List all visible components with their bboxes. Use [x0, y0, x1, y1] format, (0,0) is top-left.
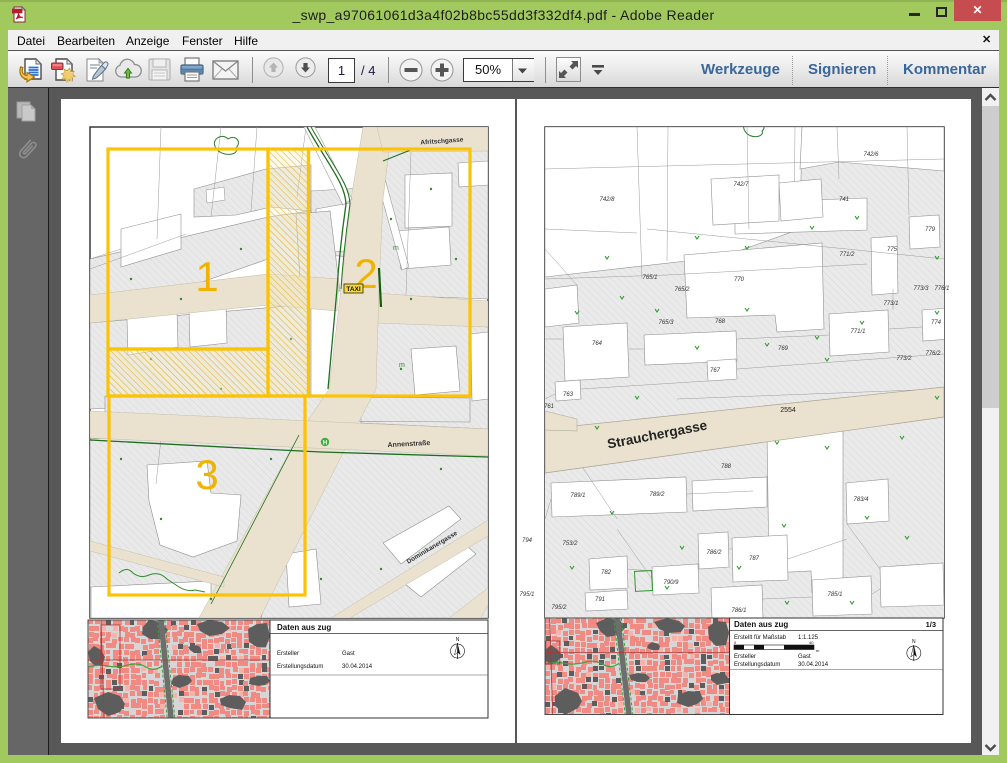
svg-text:764: 764	[592, 341, 603, 347]
svg-text:774: 774	[931, 320, 942, 326]
svg-text:794: 794	[522, 538, 533, 544]
svg-text:776/2: 776/2	[925, 351, 941, 357]
svg-text:1/3: 1/3	[926, 620, 936, 629]
svg-text:779: 779	[925, 227, 936, 233]
svg-text:Ersteller: Ersteller	[277, 651, 299, 657]
svg-text:787: 787	[749, 556, 760, 562]
svg-text:2554: 2554	[780, 407, 796, 414]
svg-text:Erstellungsdatum: Erstellungsdatum	[277, 664, 323, 670]
svg-text:795/2: 795/2	[551, 605, 567, 611]
svg-text:776/1: 776/1	[934, 286, 949, 292]
svg-text:773/1: 773/1	[883, 301, 898, 307]
svg-text:Gast: Gast	[342, 651, 355, 657]
svg-text:Daten aus zug: Daten aus zug	[734, 620, 788, 629]
svg-text:768: 768	[715, 319, 726, 325]
svg-text:1: 1	[195, 253, 218, 300]
svg-text:40: 40	[809, 640, 814, 645]
svg-text:783/4: 783/4	[853, 497, 869, 503]
svg-text:767: 767	[710, 368, 721, 374]
svg-text:769: 769	[778, 346, 789, 352]
svg-text:789/2: 789/2	[649, 492, 665, 498]
svg-text:775: 775	[887, 247, 898, 253]
svg-text:788: 788	[721, 464, 732, 470]
svg-text:765/1: 765/1	[642, 275, 657, 281]
svg-text:791: 791	[595, 597, 605, 603]
svg-text:765/3: 765/3	[658, 320, 674, 326]
svg-text:782: 782	[601, 570, 612, 576]
svg-text:m: m	[399, 362, 405, 369]
svg-text:TAXI: TAXI	[346, 286, 361, 293]
svg-text:30.04.2014: 30.04.2014	[798, 662, 829, 668]
svg-text:761: 761	[544, 404, 554, 410]
svg-text:H: H	[323, 441, 327, 447]
svg-text:30.04.2014: 30.04.2014	[342, 664, 373, 670]
svg-text:742/6: 742/6	[863, 152, 879, 158]
svg-text:773/2: 773/2	[896, 356, 912, 362]
svg-text:Gast: Gast	[798, 654, 811, 660]
svg-text:Ersteller: Ersteller	[734, 654, 756, 660]
svg-text:753/2: 753/2	[562, 541, 578, 547]
svg-text:795/1: 795/1	[519, 592, 534, 598]
svg-text:770: 770	[734, 277, 745, 283]
svg-text:765/2: 765/2	[674, 287, 690, 293]
svg-text:786/2: 786/2	[706, 550, 722, 556]
svg-text:742/7: 742/7	[733, 182, 749, 188]
svg-text:741: 741	[839, 197, 849, 203]
svg-text:Erstellt für Maßstab: Erstellt für Maßstab	[734, 635, 787, 641]
svg-text:m: m	[393, 245, 399, 252]
svg-text:785/1: 785/1	[827, 592, 842, 598]
svg-text:771/2: 771/2	[839, 252, 855, 258]
svg-text:763: 763	[563, 392, 574, 398]
svg-text:742/8: 742/8	[599, 197, 615, 203]
svg-text:771/1: 771/1	[850, 329, 865, 335]
svg-text:3: 3	[195, 451, 218, 498]
svg-text:789/1: 789/1	[570, 493, 585, 499]
svg-text:N: N	[912, 639, 916, 645]
svg-text:Daten aus zug: Daten aus zug	[277, 623, 331, 632]
svg-text:Erstellungsdatum: Erstellungsdatum	[734, 662, 780, 668]
svg-text:790/9: 790/9	[663, 580, 679, 586]
svg-text:773/3: 773/3	[913, 286, 929, 292]
svg-text:786/1: 786/1	[731, 608, 746, 614]
svg-text:N: N	[456, 637, 460, 643]
